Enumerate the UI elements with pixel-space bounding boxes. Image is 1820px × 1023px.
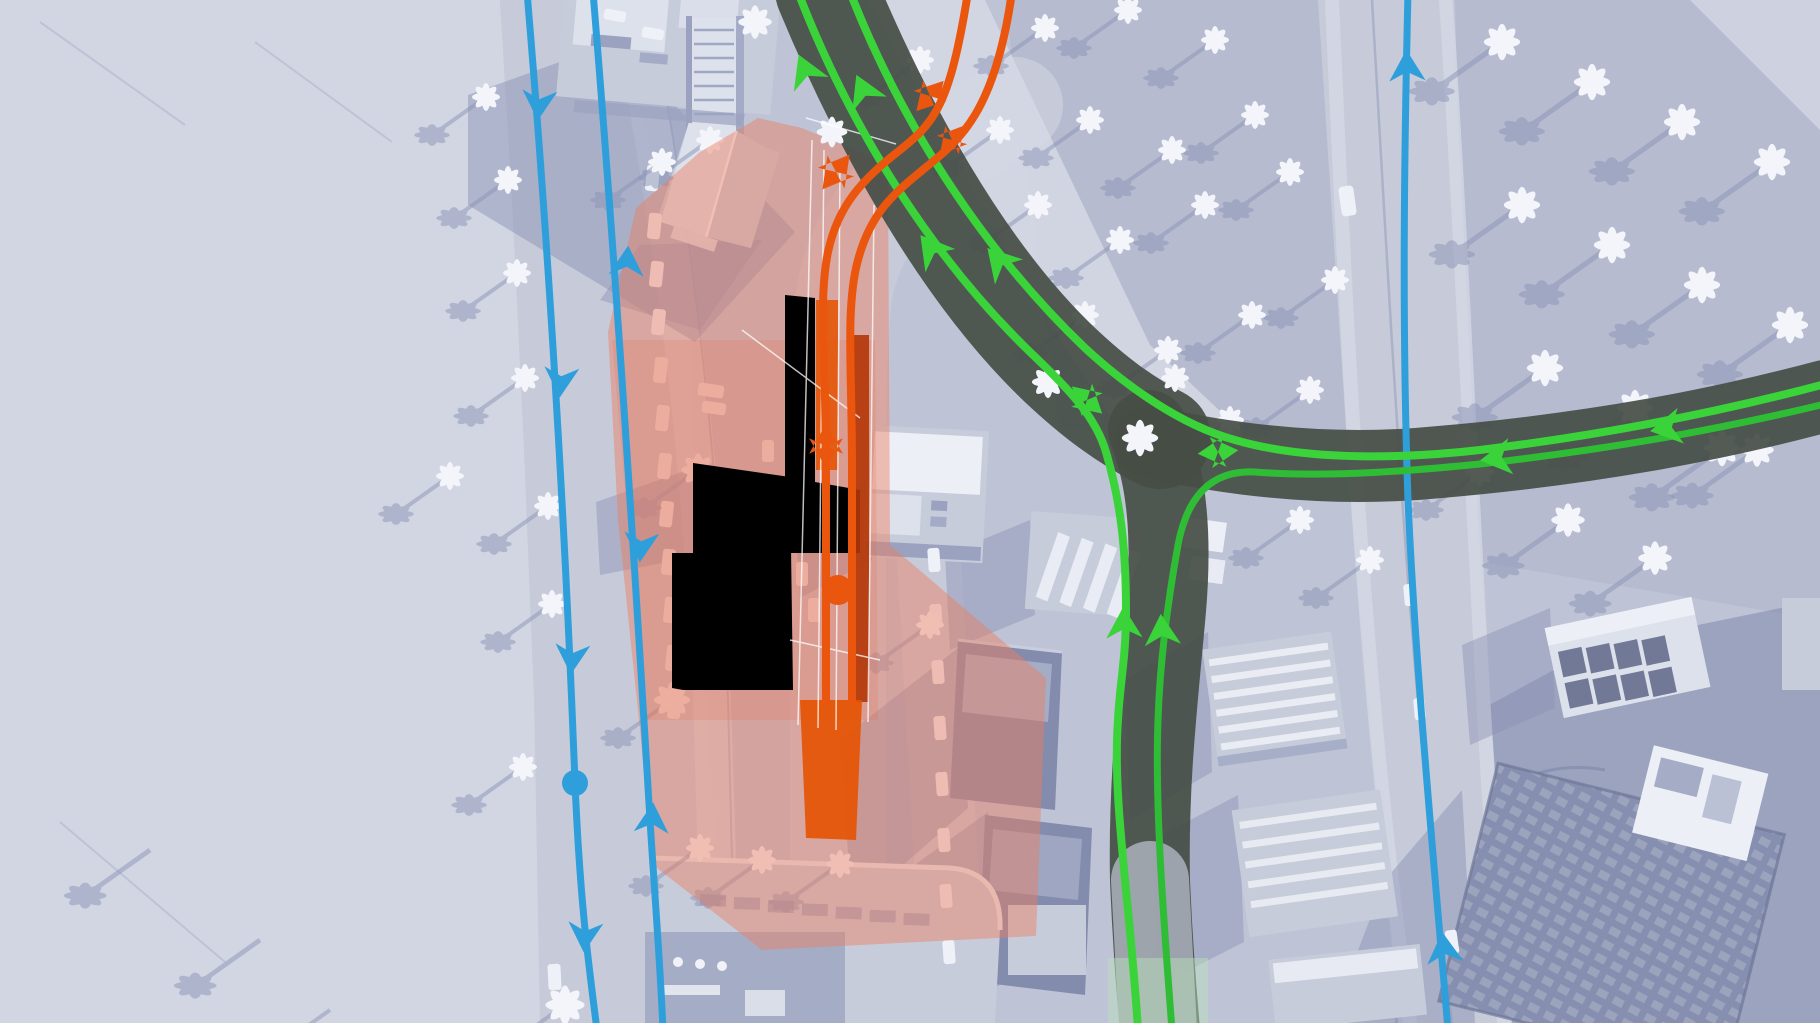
game-viewport[interactable] <box>0 0 1820 1023</box>
selected-building-north-wing <box>785 295 815 490</box>
hillside-grove-ground <box>1455 0 1820 620</box>
orange-route-node[interactable] <box>823 575 853 605</box>
ramp-green-wash <box>1108 958 1208 1023</box>
orange-road-segment-lower <box>800 700 862 840</box>
car[interactable] <box>547 964 561 991</box>
snow-field <box>0 0 542 1023</box>
rowhouse-striped-2[interactable] <box>1232 789 1398 937</box>
rowhouse-striped-1[interactable] <box>1202 632 1347 767</box>
blue-route-node[interactable] <box>562 770 588 796</box>
city-scene <box>0 0 1820 1023</box>
building-edge-partial[interactable] <box>1782 598 1820 690</box>
